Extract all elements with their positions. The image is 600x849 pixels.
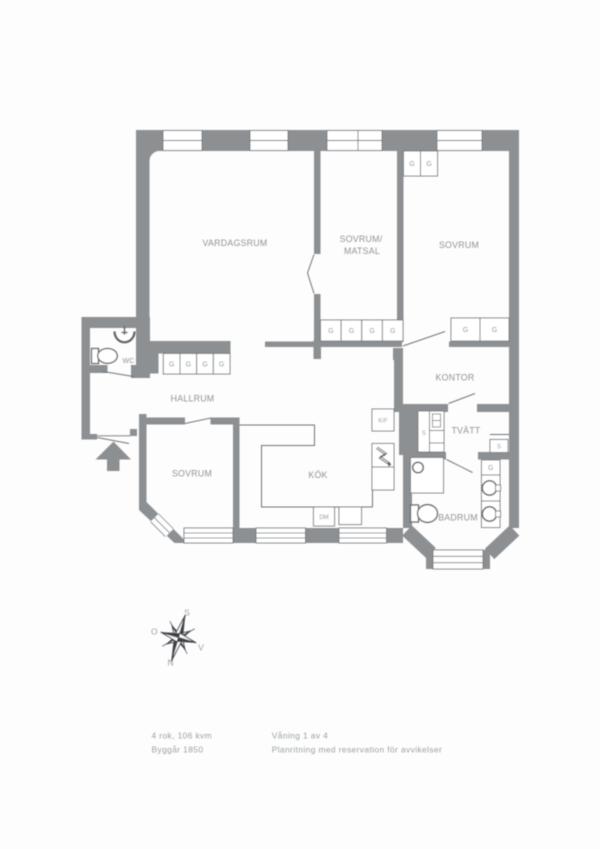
svg-text:S: S xyxy=(184,608,190,618)
svg-text:G: G xyxy=(426,161,431,168)
svg-text:G: G xyxy=(169,361,174,368)
svg-text:G: G xyxy=(328,328,333,335)
svg-text:G: G xyxy=(349,328,354,335)
svg-text:G: G xyxy=(492,327,497,334)
svg-text:G: G xyxy=(463,327,468,334)
svg-text:DM: DM xyxy=(319,515,328,521)
svg-text:Planritning med reservation fö: Planritning med reservation för avvikels… xyxy=(272,745,442,755)
svg-text:G: G xyxy=(369,328,374,335)
svg-text:G: G xyxy=(409,161,414,168)
svg-text:G: G xyxy=(219,361,224,368)
svg-text:N: N xyxy=(168,658,174,668)
svg-text:KONTOR: KONTOR xyxy=(436,373,475,383)
svg-text:BADRUM: BADRUM xyxy=(438,513,478,523)
svg-text:SOVRUM/: SOVRUM/ xyxy=(340,234,383,244)
svg-text:Byggår 1850: Byggår 1850 xyxy=(152,745,204,755)
svg-text:O: O xyxy=(151,627,158,637)
svg-text:4 rok, 106 kvm: 4 rok, 106 kvm xyxy=(152,731,213,741)
svg-text:KÖK: KÖK xyxy=(308,470,327,480)
svg-text:S: S xyxy=(497,445,501,451)
svg-text:K/F: K/F xyxy=(378,419,388,425)
svg-text:G: G xyxy=(390,328,395,335)
svg-text:S: S xyxy=(422,431,426,437)
svg-text:WC: WC xyxy=(122,358,134,365)
svg-text:MATSAL: MATSAL xyxy=(344,246,380,256)
svg-text:SOVRUM: SOVRUM xyxy=(172,469,212,479)
svg-text:VARDAGSRUM: VARDAGSRUM xyxy=(203,238,268,248)
svg-text:G: G xyxy=(488,465,493,472)
svg-text:TVÄTT: TVÄTT xyxy=(451,426,480,436)
svg-text:V: V xyxy=(198,643,204,653)
svg-text:G: G xyxy=(186,361,191,368)
svg-text:SOVRUM: SOVRUM xyxy=(439,240,479,250)
svg-text:HALLRUM: HALLRUM xyxy=(171,394,215,404)
svg-text:Våning 1 av 4: Våning 1 av 4 xyxy=(272,731,328,741)
svg-text:G: G xyxy=(202,361,207,368)
